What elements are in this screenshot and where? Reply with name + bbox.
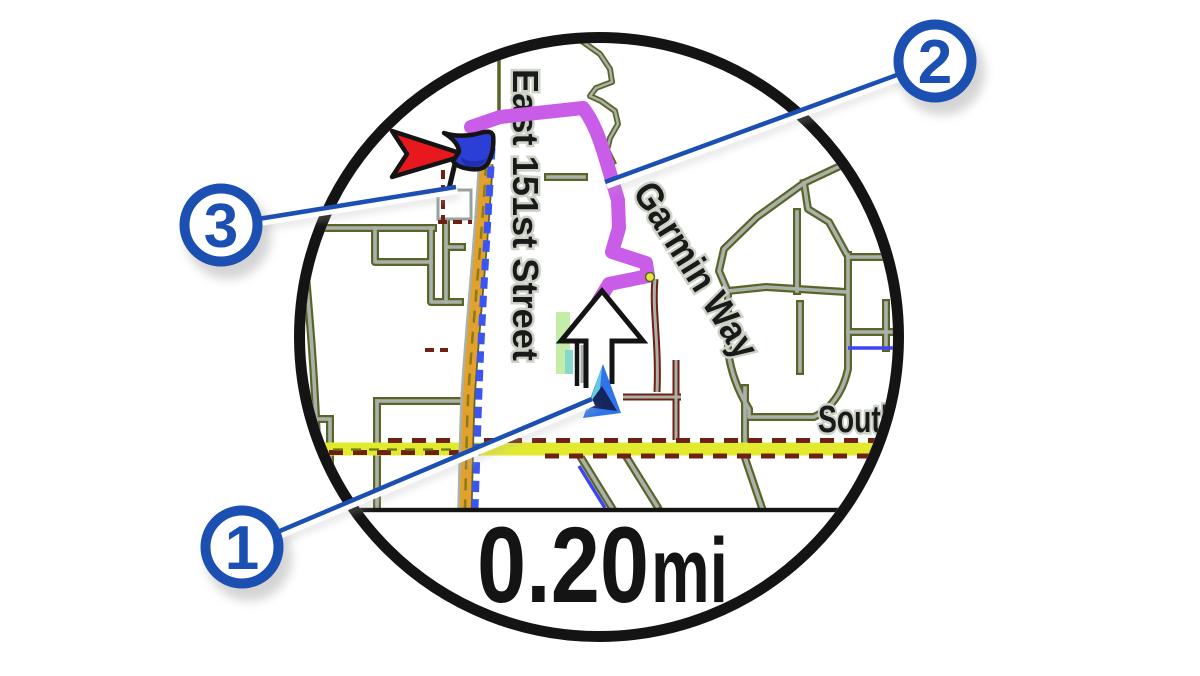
svg-text:1: 1 [225,514,259,583]
svg-text:2: 2 [918,28,952,97]
svg-text:mi: mi [651,520,728,622]
svg-text:0.20: 0.20 [477,504,649,625]
svg-text:3: 3 [204,192,238,261]
